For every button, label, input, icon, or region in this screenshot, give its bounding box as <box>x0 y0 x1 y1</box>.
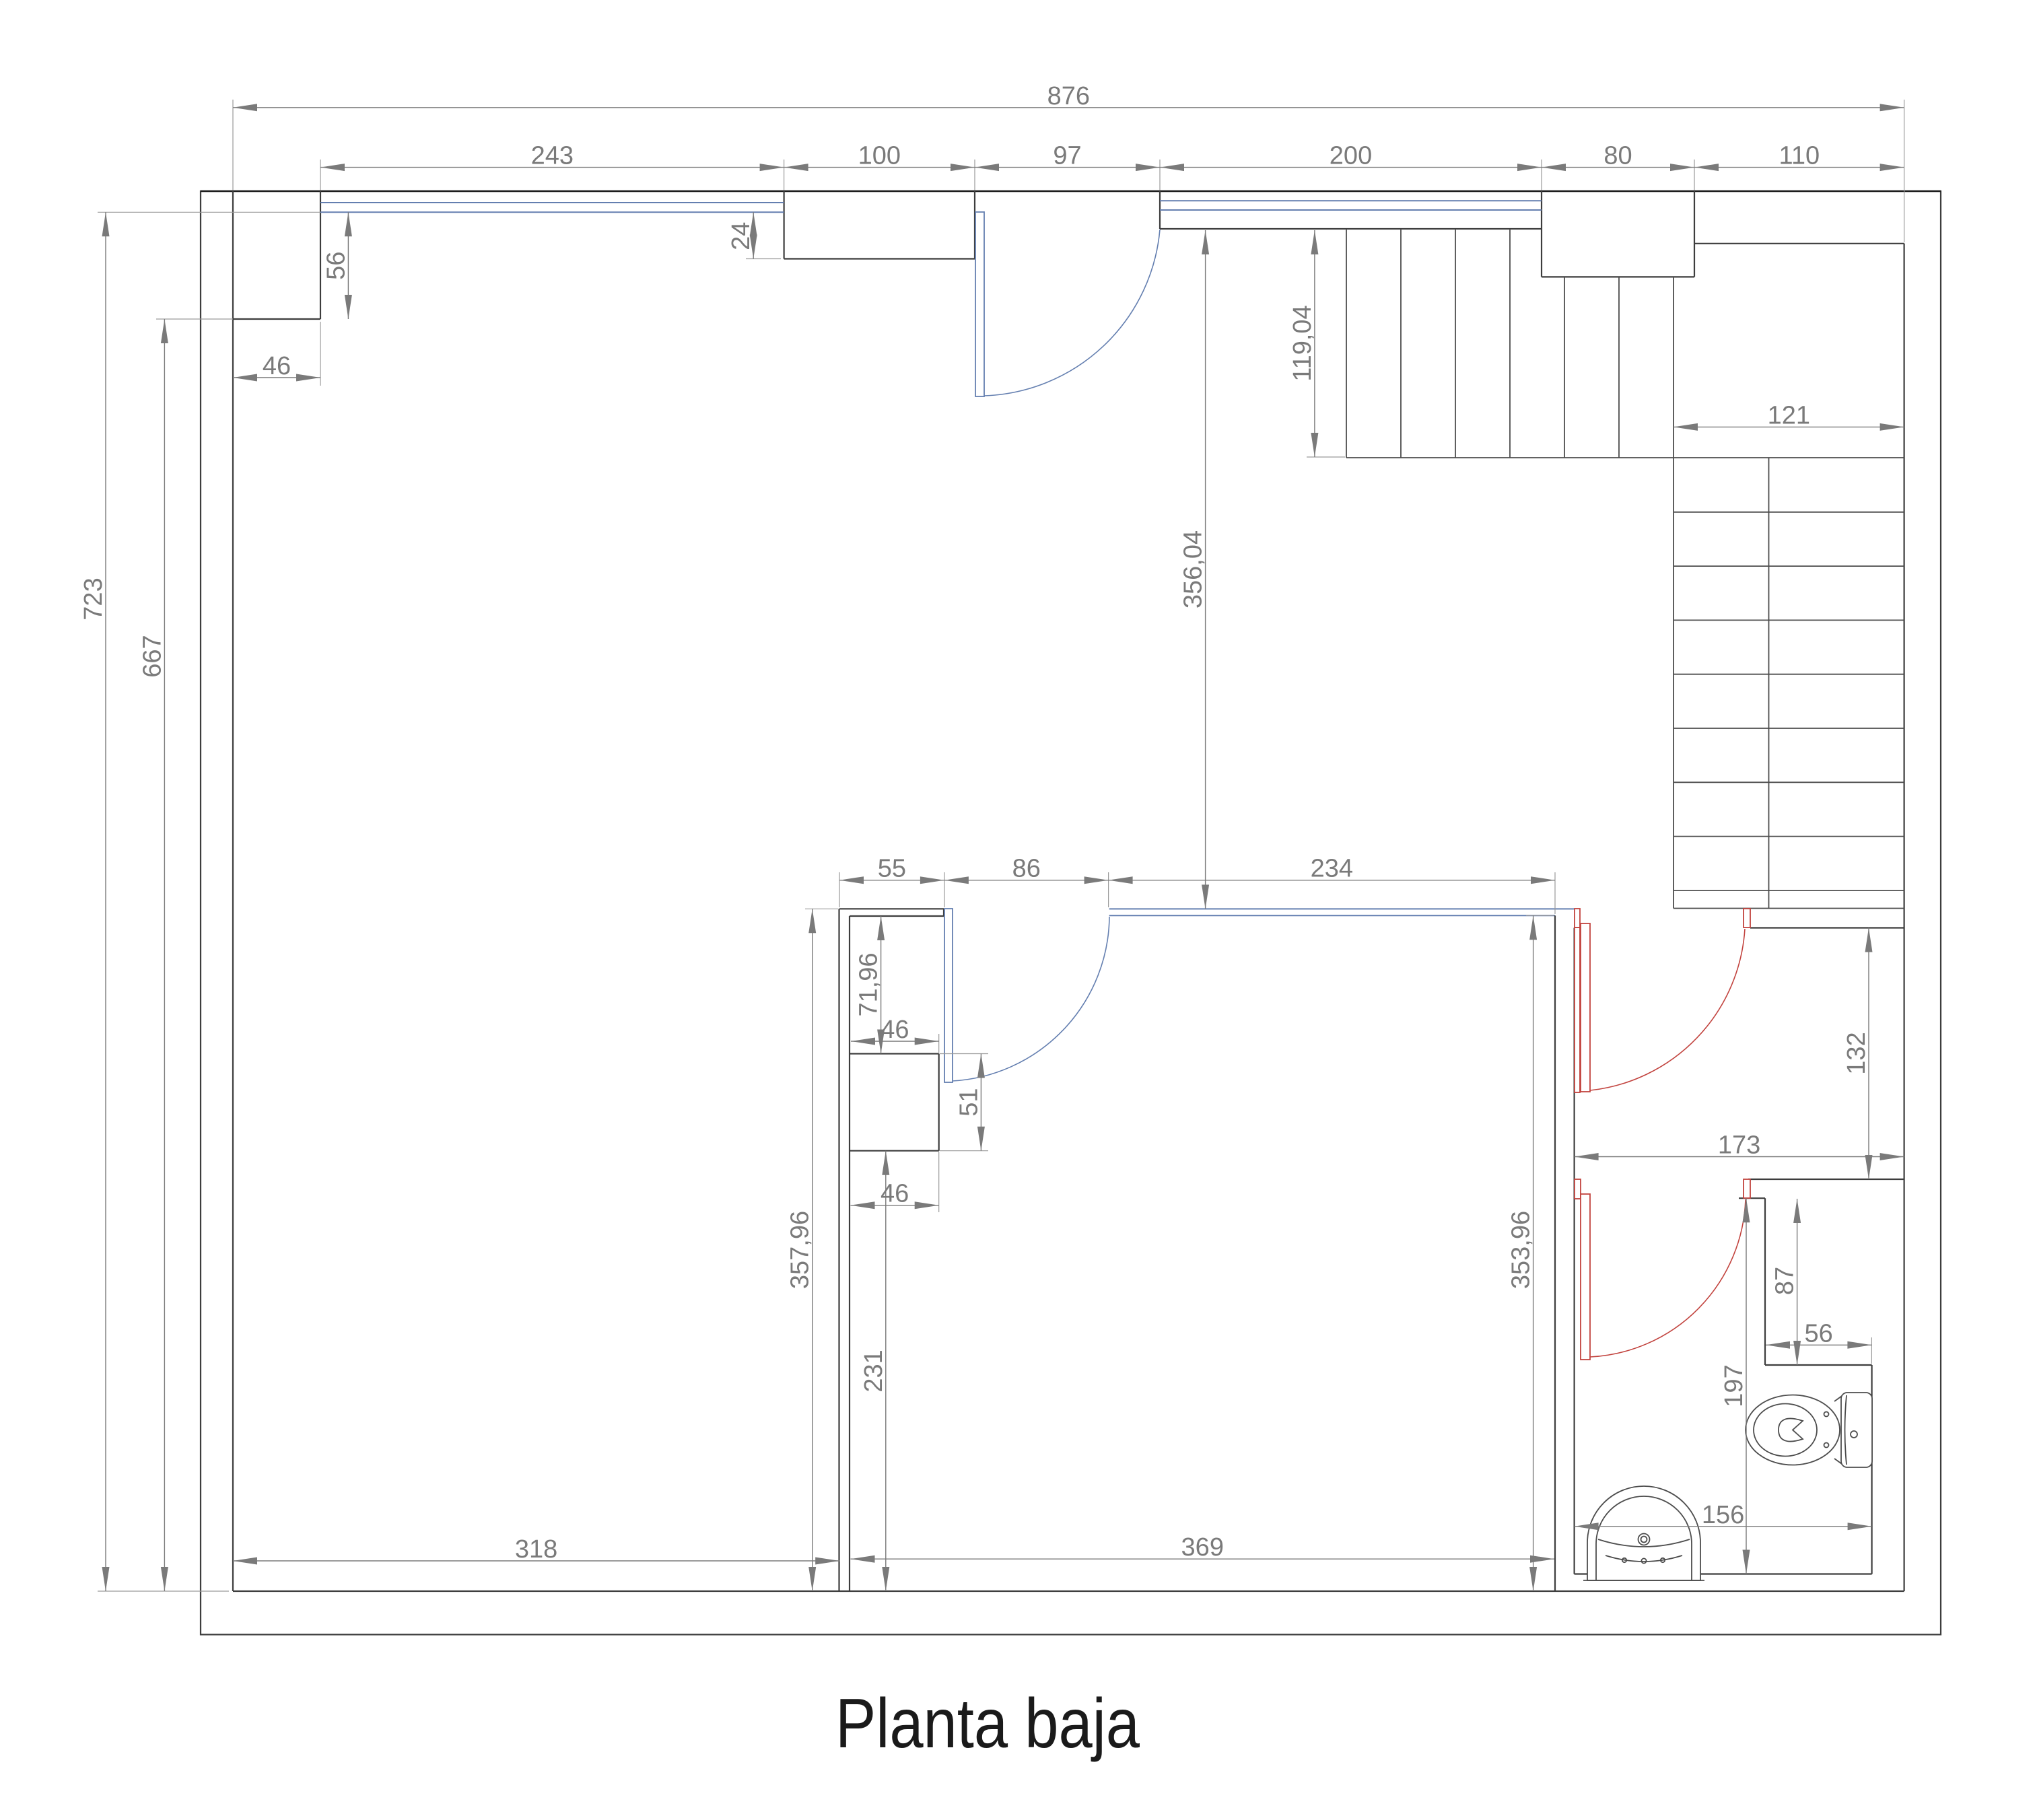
svg-text:24: 24 <box>727 222 755 250</box>
svg-text:369: 369 <box>1181 1533 1224 1562</box>
svg-text:86: 86 <box>1012 855 1041 883</box>
svg-text:46: 46 <box>263 352 291 380</box>
svg-text:243: 243 <box>531 142 574 170</box>
svg-text:55: 55 <box>878 855 906 883</box>
svg-text:156: 156 <box>1702 1501 1744 1529</box>
svg-text:121: 121 <box>1768 401 1810 429</box>
svg-text:Planta baja: Planta baja <box>835 1685 1140 1763</box>
svg-text:723: 723 <box>79 577 108 620</box>
svg-text:87: 87 <box>1771 1267 1799 1295</box>
svg-text:353,96: 353,96 <box>1507 1211 1536 1289</box>
svg-text:56: 56 <box>322 252 350 280</box>
svg-text:110: 110 <box>1779 142 1820 170</box>
svg-text:119,04: 119,04 <box>1288 305 1317 381</box>
svg-text:46: 46 <box>881 1180 909 1208</box>
svg-text:173: 173 <box>1718 1131 1760 1160</box>
svg-text:357,96: 357,96 <box>786 1211 815 1289</box>
svg-text:667: 667 <box>138 635 166 677</box>
svg-text:231: 231 <box>860 1350 888 1392</box>
svg-text:97: 97 <box>1053 142 1081 170</box>
svg-text:356,04: 356,04 <box>1179 530 1208 608</box>
svg-text:234: 234 <box>1311 855 1353 883</box>
svg-text:200: 200 <box>1330 142 1372 170</box>
svg-text:100: 100 <box>858 142 901 170</box>
svg-text:197: 197 <box>1720 1364 1748 1407</box>
svg-text:318: 318 <box>515 1535 557 1564</box>
svg-text:51: 51 <box>955 1088 983 1116</box>
svg-text:132: 132 <box>1842 1032 1871 1074</box>
svg-text:46: 46 <box>881 1016 909 1044</box>
svg-text:71,96: 71,96 <box>855 952 883 1016</box>
svg-text:876: 876 <box>1047 82 1090 110</box>
svg-text:80: 80 <box>1603 142 1632 170</box>
svg-text:56: 56 <box>1805 1319 1833 1347</box>
